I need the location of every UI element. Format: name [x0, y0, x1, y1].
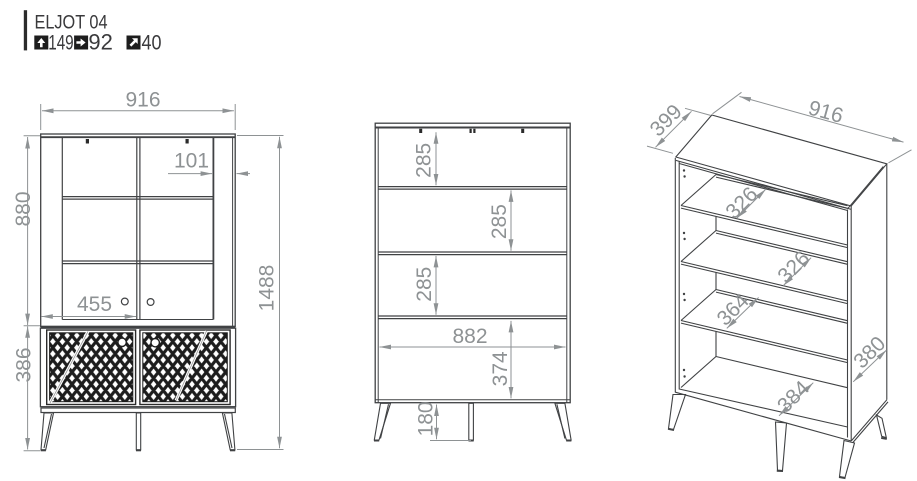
svg-text:285: 285 — [413, 267, 436, 302]
svg-text:374: 374 — [489, 351, 512, 386]
svg-text:916: 916 — [125, 89, 160, 112]
svg-text:1488: 1488 — [256, 265, 279, 312]
svg-text:180: 180 — [415, 401, 438, 436]
svg-text:880: 880 — [12, 191, 35, 226]
svg-text:101: 101 — [174, 150, 209, 173]
svg-text:882: 882 — [452, 325, 487, 348]
svg-text:40: 40 — [142, 32, 162, 55]
svg-text:285: 285 — [413, 143, 436, 178]
svg-text:455: 455 — [77, 293, 112, 316]
svg-text:149: 149 — [48, 32, 73, 55]
svg-text:92: 92 — [88, 30, 112, 55]
svg-text:285: 285 — [488, 204, 511, 239]
svg-text:386: 386 — [13, 347, 36, 382]
